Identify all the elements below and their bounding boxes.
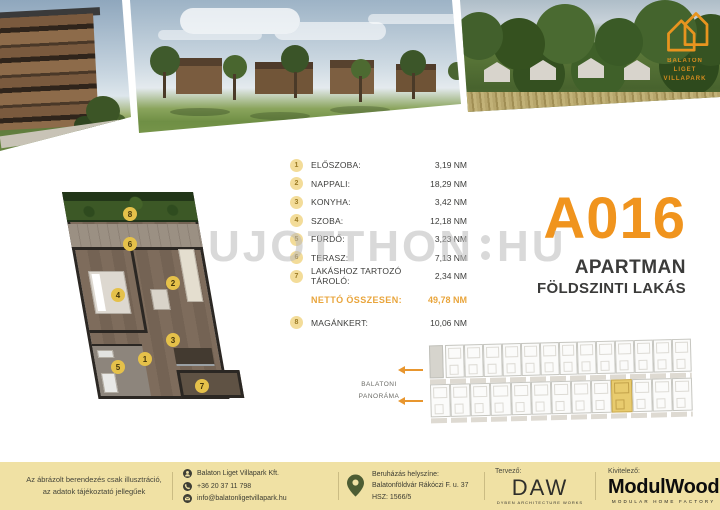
site-plan-stair-block [429, 345, 444, 378]
phone-icon [183, 482, 192, 491]
double-house-icon [656, 8, 714, 52]
house [255, 62, 313, 94]
list-item: 5 FÜRDŐ: 3,23 NM [290, 230, 467, 249]
location-pin-icon [347, 474, 364, 497]
list-item: 2 NAPPALI: 18,29 NM [290, 175, 467, 194]
house [396, 64, 436, 92]
site-plan [429, 339, 693, 430]
room-label: NAPPALI: [311, 179, 430, 189]
plan-marker-2: 2 [166, 276, 180, 290]
contact-block: Balaton Liget Villapark Kft. +36 20 37 1… [173, 469, 338, 503]
location-address: Balatonföldvár Rákóczi F. u. 37 [372, 480, 469, 492]
unit-title-block: A016 APARTMAN FÖLDSZINTI LAKÁS [537, 190, 686, 297]
net-total-label: NETTÓ ÖSSZESEN: [311, 295, 428, 305]
highlighted-unit-a016 [611, 379, 632, 413]
room-value: 7,13 NM [435, 253, 467, 263]
brand-badge: BALATON LIGET VILLAPARK [655, 8, 715, 84]
room-label: SZOBA: [311, 216, 430, 226]
daw-tagline: DYBEN ARCHITECTURE WORKS [495, 500, 585, 505]
storage-area [176, 370, 243, 398]
list-item: 3 KONYHA: 3,42 NM [290, 193, 467, 212]
phone-row: +36 20 37 11 798 [183, 482, 328, 491]
modulwood-logo: ModulWood [608, 477, 719, 497]
gabled-house [578, 58, 604, 78]
room-value: 10,06 NM [430, 318, 467, 328]
room-number-badge: 8 [290, 316, 303, 329]
room-number-badge: 2 [290, 177, 303, 190]
left-arrow-icon [401, 400, 423, 402]
room-label: KONYHA: [311, 197, 435, 207]
room-area-list: 1 ELŐSZOBA: 3,19 NM 2 NAPPALI: 18,29 NM … [290, 156, 467, 332]
builder-block: Kivitelező: ModulWood MODULAR HOME FACTO… [596, 468, 720, 504]
list-item: 4 SZOBA: 12,18 NM [290, 212, 467, 231]
kitchen-counter [174, 348, 215, 366]
room-label: LAKÁSHOZ TARTOZÓ TÁROLÓ: [311, 266, 435, 286]
disclaimer: Az ábrázolt berendezés csak illusztráció… [16, 474, 172, 497]
designer-label: Tervező: [495, 468, 585, 475]
forest-canopy [455, 12, 503, 60]
floor-plan [62, 192, 193, 399]
unit-floor: FÖLDSZINTI LAKÁS [537, 280, 686, 297]
bed-furniture [88, 271, 132, 313]
site-plan-row-top [429, 339, 692, 379]
plan-marker-7: 7 [195, 379, 209, 393]
person-icon [183, 469, 192, 478]
location-parcel: HSZ: 1566/5 [372, 492, 469, 504]
email-row: info@balatonligetvillapark.hu [183, 494, 328, 503]
reeds [455, 92, 720, 126]
sink-fixture [97, 350, 114, 358]
site-plan-row-bottom [430, 378, 693, 418]
brand-name-line1: BALATON LIGET [655, 57, 715, 75]
interior-wall [89, 330, 147, 333]
sofa-furniture [178, 249, 203, 301]
room-value: 12,18 NM [430, 216, 467, 226]
builder-label: Kivitelező: [608, 468, 719, 475]
room-value: 3,42 NM [435, 197, 467, 207]
list-item: 6 TERASZ: 7,13 NM [290, 249, 467, 268]
tree-shadows [170, 108, 230, 116]
room-value: 3,19 NM [435, 160, 467, 170]
modulwood-tagline: MODULAR HOME FACTORY [608, 499, 719, 504]
room-label: TERASZ: [311, 253, 435, 263]
email-address: info@balatonligetvillapark.hu [197, 495, 287, 502]
interior-wall [130, 250, 147, 330]
house [330, 60, 374, 94]
room-value: 3,23 NM [435, 234, 467, 244]
unit-code: A016 [537, 190, 686, 248]
watermark-dots-icon [481, 235, 490, 260]
email-icon [183, 494, 192, 503]
private-garden-row: 8 MAGÁNKERT: 10,06 NM [290, 314, 467, 333]
plan-marker-5: 5 [111, 360, 125, 374]
designer-block: Tervező: DAW DYBEN ARCHITECTURE WORKS [485, 468, 595, 505]
room-label: MAGÁNKERT: [311, 318, 430, 328]
room-label: FÜRDŐ: [311, 234, 435, 244]
list-item: 1 ELŐSZOBA: 3,19 NM [290, 156, 467, 175]
footer-bar: Az ábrázolt berendezés csak illusztráció… [0, 462, 720, 510]
photo-strip: BALATON LIGET VILLAPARK [0, 0, 720, 160]
room-number-badge: 6 [290, 251, 303, 264]
location-title: Beruházás helyszíne: [372, 469, 469, 481]
plan-marker-1: 1 [138, 352, 152, 366]
plan-marker-4: 4 [111, 288, 125, 302]
room-number-badge: 5 [290, 233, 303, 246]
gabled-house [484, 62, 510, 82]
list-item: 7 LAKÁSHOZ TARTOZÓ TÁROLÓ: 2,34 NM [290, 267, 467, 286]
company-name: Balaton Liget Villapark Kft. [197, 470, 279, 477]
phone-number: +36 20 37 11 798 [197, 483, 251, 490]
house [176, 58, 222, 94]
unit-type: APARTMAN [537, 257, 686, 279]
room-value: 18,29 NM [430, 179, 467, 189]
daw-logo: DAW [495, 477, 585, 499]
left-arrow-icon [401, 369, 423, 371]
floor-plan-drawing [62, 192, 229, 399]
brand-name-line2: VILLAPARK [655, 75, 715, 84]
room-value: 2,34 NM [435, 271, 467, 281]
room-number-badge: 7 [290, 270, 303, 283]
wooden-building [0, 13, 99, 130]
plan-marker-8: 8 [123, 207, 137, 221]
room-number-badge: 3 [290, 196, 303, 209]
room-number-badge: 4 [290, 214, 303, 227]
shower-fixture [101, 373, 119, 393]
plan-marker-6: 6 [123, 237, 137, 251]
room-number-badge: 1 [290, 159, 303, 172]
company-row: Balaton Liget Villapark Kft. [183, 469, 328, 478]
net-total-value: 49,78 NM [428, 295, 467, 305]
plan-marker-3: 3 [166, 333, 180, 347]
room-label: ELŐSZOBA: [311, 160, 435, 170]
table-furniture [150, 289, 171, 309]
gabled-house [530, 60, 556, 80]
location-block: Beruházás helyszíne: Balatonföldvár Rákó… [339, 469, 484, 504]
gabled-house [624, 60, 650, 80]
tree-trunks [163, 72, 166, 98]
clouds [180, 8, 300, 34]
net-total-row: NETTÓ ÖSSZESEN: 49,78 NM [290, 291, 467, 309]
